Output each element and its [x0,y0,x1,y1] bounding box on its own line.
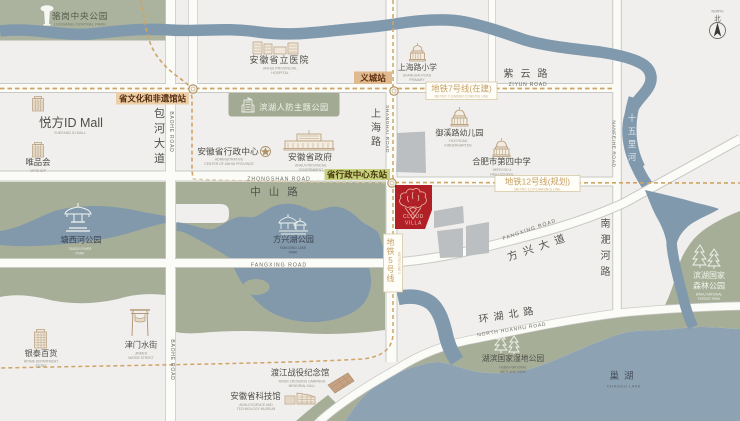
svg-text:省行政中心东站: 省行政中心东站 [326,169,388,180]
svg-text:合肥市第四中学: 合肥市第四中学 [472,157,531,167]
svg-text:骆岗中央公园: 骆岗中央公园 [52,10,108,21]
svg-text:悦方ID Mall: 悦方ID Mall [39,115,103,130]
svg-text:HOSPITAL: HOSPITAL [271,71,289,75]
svg-text:NORTH: NORTH [712,10,725,14]
svg-text:十: 十 [628,113,637,123]
svg-text:KINDERGARTEN: KINDERGARTEN [445,143,472,147]
svg-text:ZIYUN ROAD: ZIYUN ROAD [509,82,548,88]
svg-text:御溪路幼儿园: 御溪路幼儿园 [436,128,484,138]
svg-text:中山路: 中山路 [250,185,306,198]
svg-text:YUEFANG ID MALL: YUEFANG ID MALL [54,131,86,135]
svg-text:安徽省行政中心: 安徽省行政中心 [197,146,259,157]
svg-text:PARK: PARK [289,250,299,254]
svg-text:里: 里 [628,139,637,149]
svg-text:5: 5 [388,256,393,265]
svg-text:滨湖人防主题公园: 滨湖人防主题公园 [259,102,329,112]
svg-text:PRIMARY: PRIMARY [409,78,425,82]
svg-text:地铁7号线(在建): 地铁7号线(在建) [431,84,492,94]
svg-text:塘西河公园: 塘西河公园 [61,235,102,245]
svg-text:TECHNOLOGY MUSEUM: TECHNOLOGY MUSEUM [237,407,276,411]
svg-text:淝: 淝 [601,234,611,246]
svg-text:BAOHE ROAD: BAOHE ROAD [168,111,174,152]
svg-text:方兴湖公园: 方兴湖公园 [273,234,314,244]
svg-text:河: 河 [601,250,611,262]
svg-text:LUOGANG CENTRAL PARK: LUOGANG CENTRAL PARK [54,23,106,27]
svg-text:五: 五 [628,126,637,136]
svg-text:路: 路 [371,135,381,148]
svg-text:METRO 7 (UNDER CONSTR) LINE: METRO 7 (UNDER CONSTR) LINE [434,95,489,99]
svg-text:VILLA: VILLA [405,221,422,227]
svg-text:滨湖国家: 滨湖国家 [693,270,725,280]
svg-text:银泰百货: 银泰百货 [25,348,58,358]
svg-text:PARK: PARK [76,251,86,255]
svg-text:FOREST PARK: FOREST PARK [698,297,721,301]
svg-text:路: 路 [601,265,611,278]
svg-text:SHANGHAI ROAD: SHANGHAI ROAD [384,105,390,153]
svg-text:CHAOHU LAKE: CHAOHU LAKE [607,384,641,389]
svg-text:河: 河 [628,152,637,162]
svg-text:安徽省科技馆: 安徽省科技馆 [230,391,280,401]
svg-text:上海路小学: 上海路小学 [398,62,437,72]
svg-text:河: 河 [154,122,165,135]
svg-text:WATER STREET: WATER STREET [128,356,153,360]
svg-text:地铁12号线(规划): 地铁12号线(规划) [505,177,570,187]
svg-text:道: 道 [154,151,165,165]
svg-text:北: 北 [714,15,721,23]
svg-text:森林公园: 森林公园 [693,281,725,291]
svg-text:ZHONGSHAN ROAD: ZHONGSHAN ROAD [247,177,311,183]
svg-text:MEMORIAL HALL: MEMORIAL HALL [289,384,316,388]
svg-text:METRO 12 (PLANNING) LINE: METRO 12 (PLANNING) LINE [515,187,562,191]
svg-text:CENTER OF ANHUI PROVINCE: CENTER OF ANHUI PROVINCE [204,162,254,166]
svg-text:ANHUI PROVINCIAL: ANHUI PROVINCIAL [263,67,297,71]
svg-text:渡江战役纪念馆: 渡江战役纪念馆 [271,368,330,378]
svg-text:BAOHE ROAD: BAOHE ROAD [169,339,175,380]
svg-text:METRO LINE 5: METRO LINE 5 [397,252,401,274]
svg-text:津门水街: 津门水街 [125,340,158,350]
svg-text:STORE: STORE [35,364,47,368]
svg-text:南: 南 [601,217,611,230]
svg-text:安徽省政府: 安徽省政府 [288,151,332,162]
svg-text:包: 包 [154,107,165,120]
svg-text:FANGXING ROAD: FANGXING ROAD [251,263,307,269]
svg-text:GOVERNMENT: GOVERNMENT [299,168,323,172]
svg-text:巢湖: 巢湖 [609,370,638,382]
svg-text:HIGH SCHOOL: HIGH SCHOOL [490,172,514,176]
svg-text:湖滨国家湿地公园: 湖滨国家湿地公园 [482,353,545,363]
svg-text:义城站: 义城站 [359,73,386,83]
svg-text:海: 海 [371,121,381,134]
svg-text:线: 线 [387,273,395,283]
svg-text:号: 号 [387,265,395,274]
svg-text:省文化和非遗馆站: 省文化和非遗馆站 [118,94,187,104]
svg-text:上: 上 [371,108,381,120]
svg-text:安徽省立医院: 安徽省立医院 [249,54,309,65]
svg-text:VIPSHOP: VIPSHOP [30,169,47,173]
svg-text:WETLAND PARK: WETLAND PARK [500,370,527,374]
svg-text:NANFEIHE ROAD: NANFEIHE ROAD [611,120,617,167]
svg-text:铁: 铁 [387,246,395,256]
svg-text:地: 地 [387,237,395,247]
svg-text:唯品会: 唯品会 [25,157,51,167]
svg-text:紫云路: 紫云路 [504,67,555,80]
svg-text:CLOUD: CLOUD [403,214,424,220]
svg-text:大: 大 [154,136,165,150]
